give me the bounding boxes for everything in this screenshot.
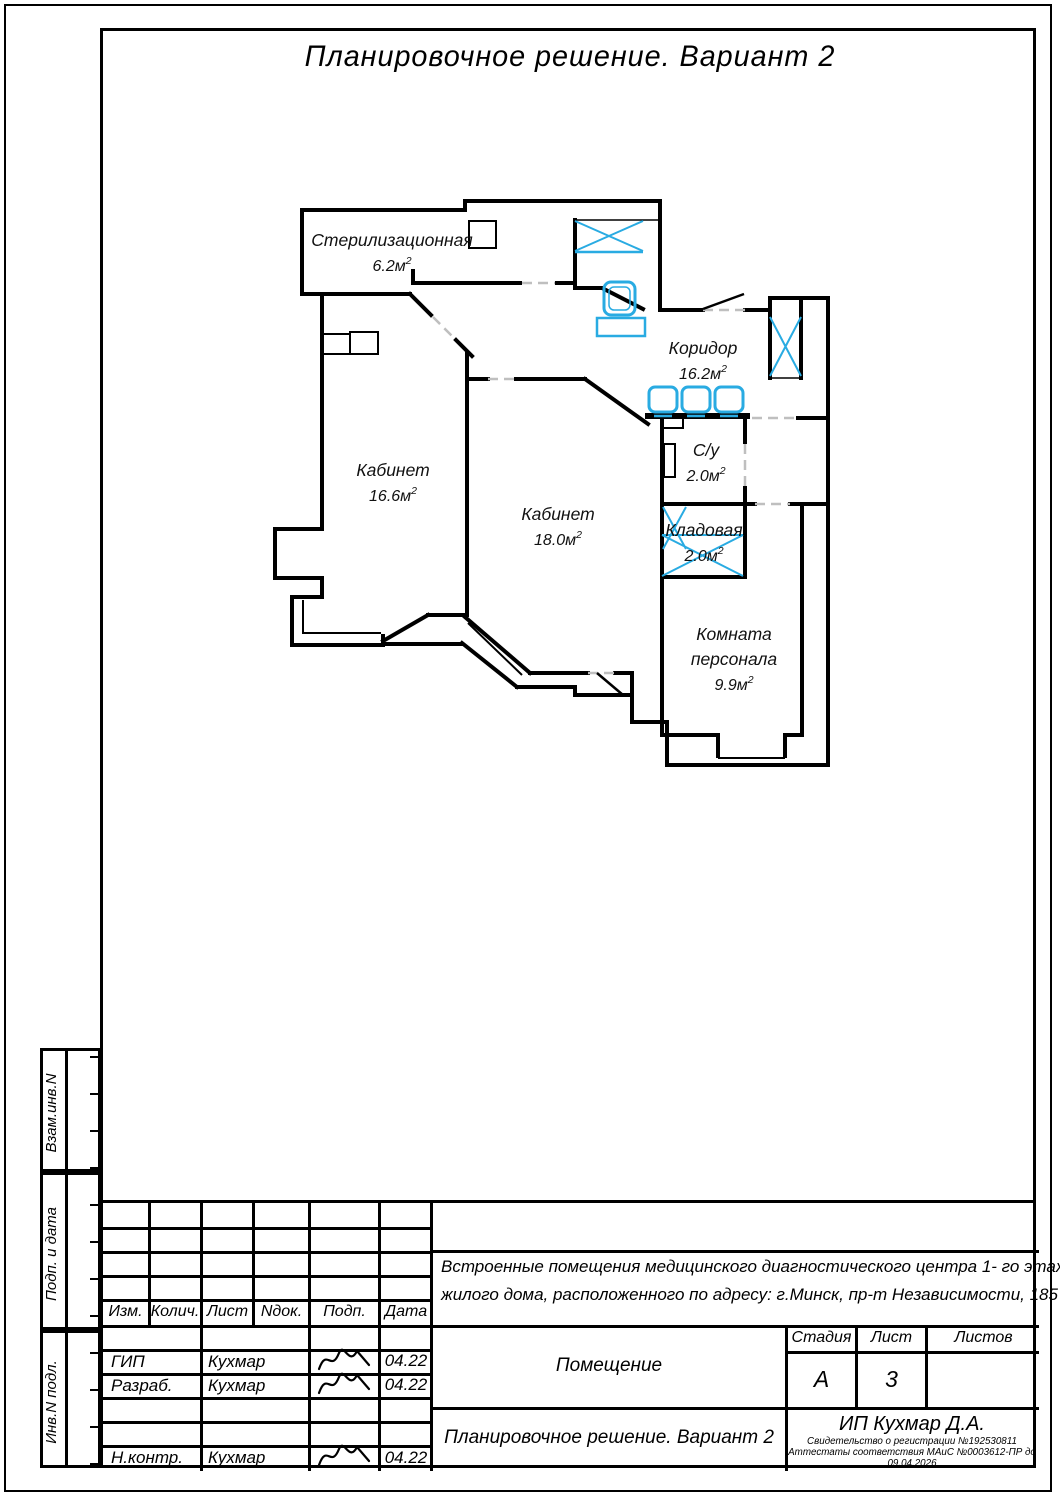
storage-cross-icon <box>662 507 743 576</box>
room-label: Кладовая <box>665 520 742 540</box>
door-openings-layer <box>433 283 796 673</box>
col-list: Лист <box>202 1300 253 1324</box>
project-line: жилого дома, расположенного по адресу: г… <box>441 1281 1033 1309</box>
stamp-inv-podl: Инв.N подл. <box>40 1330 101 1468</box>
stamp-vzam-inv: Взам.инв.N <box>40 1048 101 1172</box>
col-izm: Изм. <box>103 1300 148 1324</box>
stamp-label: Подп. и дата <box>43 1204 65 1304</box>
signature <box>313 1367 377 1401</box>
room-area: 2.0м2 <box>683 545 723 565</box>
col-data: Дата <box>380 1300 432 1324</box>
room-label: Кабинет <box>521 504 594 524</box>
stage-label: Стадия <box>788 1325 855 1351</box>
room-area: 18.0м2 <box>534 529 582 549</box>
stamp-divider <box>65 1175 68 1327</box>
object-name: Помещение <box>433 1325 785 1407</box>
row-date: 04.22 <box>380 1373 432 1397</box>
desk-icon <box>597 318 645 336</box>
room-label: С/у <box>693 440 721 460</box>
col-ndok: Nдок. <box>254 1300 309 1324</box>
room-label: Коридор <box>669 338 738 358</box>
col-podp: Подп. <box>310 1300 379 1324</box>
company-attestation: Аттестаты соответствия МАиС №0003612-ПР … <box>788 1447 1037 1469</box>
project-line: Встроенные помещения медицинского диагно… <box>441 1253 1033 1281</box>
sheet-label: Лист <box>858 1325 925 1351</box>
floor-plan: Стерилизационная6.2м2Кабинет16.6м2Кабине… <box>270 190 850 780</box>
sheets-label: Листов <box>928 1325 1039 1351</box>
stamp-divider <box>65 1333 68 1465</box>
page-title: Планировочное решение. Вариант 2 <box>215 40 925 74</box>
room-label: Комната <box>696 624 772 644</box>
room-area: 2.0м2 <box>685 465 725 485</box>
project-description: Встроенные помещения медицинского диагно… <box>441 1253 1033 1321</box>
waiting-chairs-icon <box>649 387 743 416</box>
room-area: 16.2м2 <box>679 363 727 383</box>
row-name: Кухмар <box>208 1376 306 1396</box>
row-name: Кухмар <box>208 1352 306 1372</box>
vent-shaft-icon <box>770 317 801 376</box>
row-date: 04.22 <box>380 1349 432 1373</box>
row-role: Разраб. <box>111 1376 199 1396</box>
room-label: персонала <box>691 649 778 669</box>
doc-title: Планировочное решение. Вариант 2 <box>433 1407 785 1468</box>
stamp-divider <box>65 1051 68 1169</box>
stage-value: А <box>788 1351 855 1407</box>
company-name: ИП Кухмар Д.А. <box>785 1413 1039 1436</box>
row-date: 04.22 <box>380 1445 432 1471</box>
room-label: Кабинет <box>356 460 429 480</box>
company-certificate: Свидетельство о регистрации №192530811 <box>788 1436 1037 1447</box>
row-name: Кухмар <box>208 1448 306 1468</box>
title-block: Изм. Колич. Лист Nдок. Подп. Дата ГИПКух… <box>100 1200 1036 1468</box>
sheet-value: 3 <box>858 1351 925 1407</box>
room-labels-layer: Стерилизационная6.2м2Кабинет16.6м2Кабине… <box>311 230 777 694</box>
vent-shaft-icon <box>575 221 643 252</box>
signature <box>313 1439 377 1473</box>
col-kolich: Колич. <box>149 1300 201 1324</box>
stamp-podp-data: Подп. и дата <box>40 1172 101 1330</box>
sheets-value <box>928 1351 1039 1407</box>
stamp-label: Инв.N подл. <box>43 1352 65 1452</box>
room-area: 9.9м2 <box>714 674 753 694</box>
room-label: Стерилизационная <box>311 230 473 250</box>
drawing-sheet: Планировочное решение. Вариант 2 Взам.ин… <box>0 0 1060 1500</box>
row-role: ГИП <box>111 1352 199 1372</box>
room-area: 6.2м2 <box>372 255 411 275</box>
room-area: 16.6м2 <box>369 485 417 505</box>
stamp-label: Взам.инв.N <box>43 1063 65 1163</box>
row-role: Н.контр. <box>111 1448 199 1468</box>
